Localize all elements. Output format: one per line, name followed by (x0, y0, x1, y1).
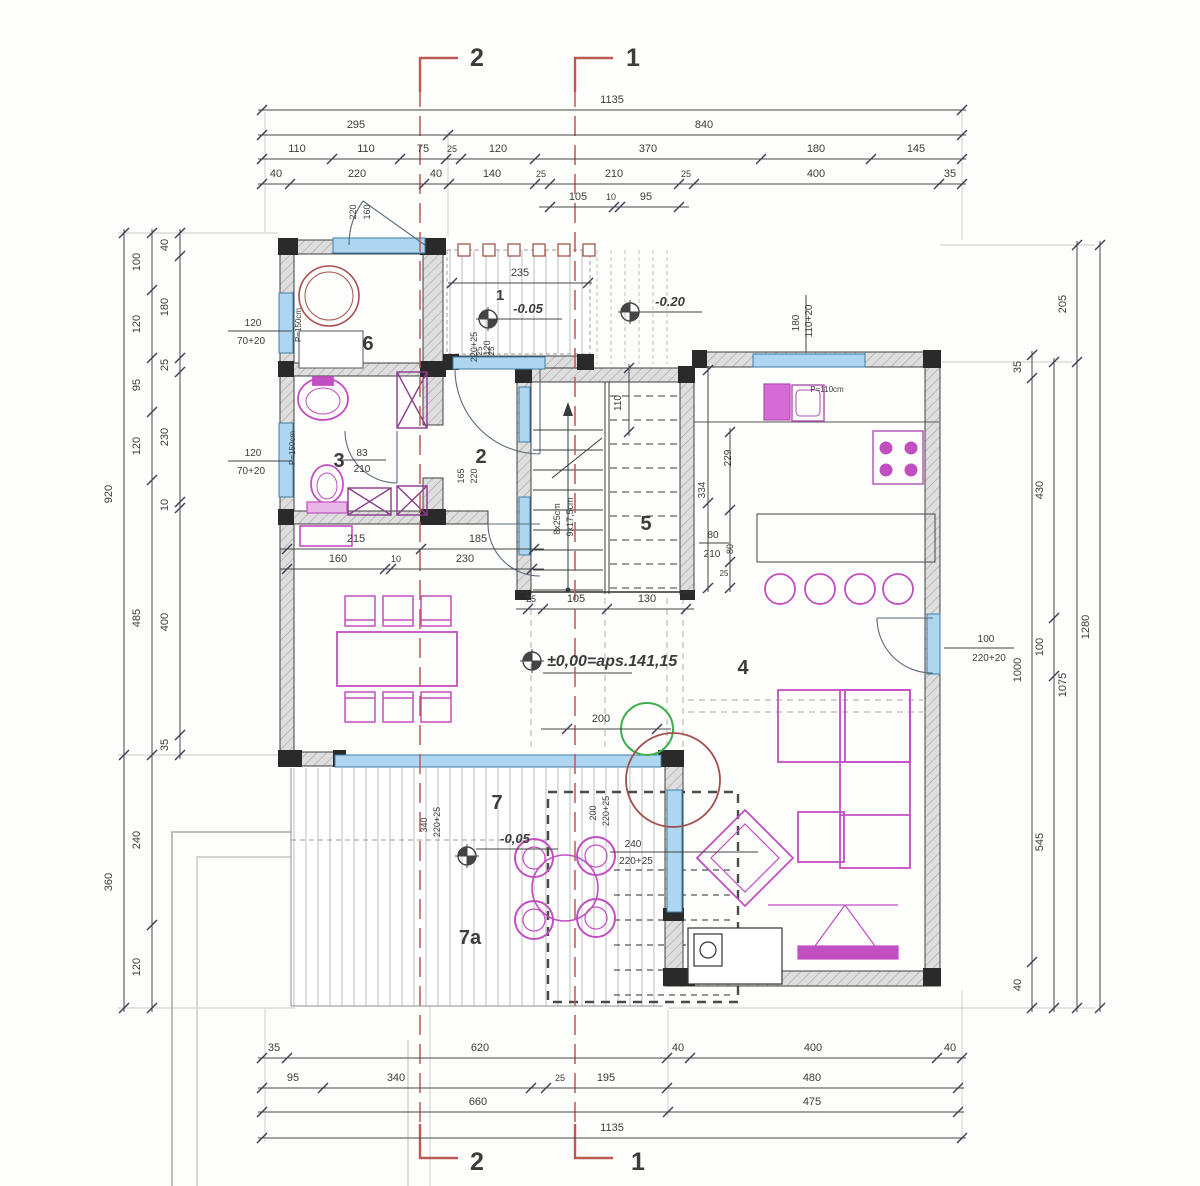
dim-value: 1135 (600, 1122, 624, 1134)
sofa-cushion (798, 812, 844, 862)
dim-value: 75 (417, 143, 429, 155)
bar-stools (765, 574, 913, 604)
dim-value: 295 (347, 119, 365, 131)
door-spec-east-b: 220+20 (972, 653, 1006, 664)
stair-break-line (552, 438, 602, 478)
dim-value: 10 (159, 499, 171, 511)
dim-value: 370 (639, 143, 657, 155)
kitchen-sink-left (764, 384, 790, 420)
stair-treads-upper (610, 396, 678, 588)
floor-plan-drawing: 1135295840110110752512037018014540220401… (0, 0, 1200, 1186)
door-spec-bath-a: 83 (356, 448, 368, 459)
door-spec-entry-b: 160 (362, 204, 372, 219)
door-spec-terrace-s-a: 200 (588, 805, 598, 820)
dim-210: 210 (704, 549, 721, 560)
floor-plan-sheet: 1135295840110110752512037018014540220401… (0, 0, 1200, 1186)
dim-value: 120 (489, 143, 507, 155)
dim-value: 95 (131, 379, 143, 391)
dim-value: 110 (357, 143, 375, 155)
room-label-5: 5 (640, 513, 651, 535)
dim-value: 40 (944, 1042, 956, 1054)
door-spec-east-a: 100 (978, 634, 995, 645)
dim-value: 230 (456, 553, 474, 565)
stair-direction-arrow (563, 402, 573, 416)
dim-25-porch-b: 25 (487, 346, 496, 355)
dim-value: 185 (469, 533, 487, 545)
section-label-2-bottom: 2 (470, 1148, 484, 1176)
furniture-kitchen (694, 384, 939, 604)
dim-value: 1135 (600, 94, 624, 106)
dim-229: 229 (723, 449, 734, 466)
section-label-2-top: 2 (470, 44, 484, 72)
dim-value: 660 (469, 1096, 487, 1108)
door-spec-terrace-s-b: 220+25 (601, 796, 611, 826)
toilet (307, 465, 347, 513)
dim-value: 35 (159, 739, 171, 751)
furniture-bathroom (298, 377, 348, 513)
window-spec-left-top: 120 (245, 318, 262, 329)
room-label-4: 4 (737, 657, 749, 679)
dim-chain-bottom-row-total: 1135 (257, 1122, 967, 1143)
furniture-living (697, 690, 910, 959)
section-label-1-top: 1 (626, 44, 640, 72)
dim-value: 220 (348, 168, 366, 180)
dim-value: 240 (131, 831, 143, 849)
dim-value: 210 (605, 168, 623, 180)
dim-value: 95 (287, 1072, 299, 1084)
section-label-1-bottom: 1 (631, 1148, 645, 1176)
dim-value: 620 (471, 1042, 489, 1054)
dim-chain-left-col-mid: 10012095120485240120 (131, 228, 157, 1013)
dining-table (337, 632, 457, 686)
dim-value: 545 (1034, 833, 1046, 851)
dim-value: 120 (131, 437, 143, 455)
dim-value: 160 (329, 553, 347, 565)
dim-chain-right-col-a: 35100040 (1012, 350, 1037, 1013)
dim-chain-left-col-inner: 40180252301040035 (159, 228, 185, 760)
dim-value: 1000 (1012, 658, 1024, 682)
parapet-left-bot: P=150cm (288, 431, 297, 465)
dim-chain-bottom-row-3: 660475 (257, 1096, 964, 1117)
dim-chain-top-row-3: 1101107525120370180145 (257, 143, 967, 164)
dim-80a: 80 (707, 530, 719, 541)
dim-value: 180 (159, 298, 171, 316)
door-terrace (667, 790, 682, 912)
level-terrace: -0,05 (500, 831, 530, 846)
dim-value: 145 (907, 143, 925, 155)
stair-walk-start (566, 588, 571, 593)
dim-value: 35 (944, 168, 956, 180)
glass-stair-b (519, 497, 530, 555)
dim-value: 360 (103, 873, 115, 891)
furniture-room6 (299, 266, 363, 368)
door-east (927, 614, 940, 674)
dim-value: 1075 (1057, 673, 1069, 697)
dim-value: 400 (807, 168, 825, 180)
dim-chain-hall-lower: 16010230 (280, 553, 544, 574)
entry-door-glazing (333, 238, 425, 253)
furniture-dining (337, 596, 457, 722)
dim-value: 100 (131, 253, 143, 271)
dim-value: 35 (1012, 361, 1024, 373)
dim-value: 40 (270, 168, 282, 180)
sink (298, 377, 348, 420)
room-label-7: 7 (491, 792, 502, 814)
kitchen-island (757, 514, 935, 562)
dim-value: 920 (103, 485, 115, 503)
sofa-seat (778, 690, 910, 762)
opening-spec-hall-a: 165 (456, 468, 466, 483)
dim-25a: 25 (720, 569, 729, 578)
dim-value: 130 (638, 593, 656, 605)
dim-chain-top-row-5: 1051095 (539, 191, 689, 212)
dim-25-porch-a: 25 (475, 346, 484, 355)
dim-value: 110 (288, 143, 306, 155)
dim-value: 40 (430, 168, 442, 180)
dim-value: 35 (268, 1042, 280, 1054)
dim-value: 40 (159, 239, 171, 251)
dim-value: 400 (159, 613, 171, 631)
dim-stair-110: 110 (613, 395, 624, 411)
appliance-boxes (348, 372, 427, 515)
dim-value: 205 (1057, 295, 1069, 313)
dim-value: 1280 (1080, 615, 1092, 639)
dim-chain-living-200: 200 (541, 713, 671, 734)
dim-value: 40 (672, 1042, 684, 1054)
dim-chain-bottom-row-1: 356204040040 (257, 1042, 967, 1063)
dim-value: 10 (391, 554, 401, 564)
dim-chain-left-col-outer: 920360 (103, 228, 129, 1013)
dim-value: 25 (681, 169, 691, 179)
level-ground: -0.20 (655, 294, 685, 309)
dim-value: 230 (159, 428, 171, 446)
window-spec-left-top2: 70+20 (237, 336, 266, 347)
room-label-2: 2 (475, 446, 486, 468)
armchair-diamond (697, 810, 793, 906)
porch-label-1: 1 (496, 287, 504, 304)
window-spec-left-bot2: 70+20 (237, 466, 266, 477)
window-kitchen (753, 354, 865, 367)
dim-chain-hall-upper: 215185 (280, 533, 544, 554)
dim-chain-right-col-c: 2051075 (1057, 240, 1082, 1013)
dim-value: 10 (606, 192, 616, 202)
level-porch: -0.05 (513, 301, 543, 316)
room-label-6: 6 (362, 333, 373, 355)
dim-value: 180 (807, 143, 825, 155)
window-spec-kitchen-a: 180 (791, 314, 802, 331)
dim-value: 120 (131, 315, 143, 333)
dim-value: 400 (804, 1042, 822, 1054)
dim-value: 840 (695, 119, 713, 131)
dim-value: 475 (803, 1096, 821, 1108)
dim-value: 95 (640, 191, 652, 203)
door-spec-bath-b: 210 (354, 464, 371, 475)
dim-value: 480 (803, 1072, 821, 1084)
window-spec-left-bot: 120 (245, 448, 262, 459)
stairs (533, 382, 678, 594)
dim-value: 25 (447, 144, 457, 154)
stove (873, 431, 923, 484)
dim-value: 235 (511, 267, 529, 279)
dim-value: 120 (131, 958, 143, 976)
dim-value: 25 (159, 359, 171, 371)
dim-chain-top-row-2: 295840 (257, 119, 967, 140)
window-room6 (279, 293, 293, 353)
dim-value: 25 (526, 594, 536, 604)
opening-spec-hall-b: 220 (469, 468, 479, 483)
dim-80b: 80 (725, 544, 735, 554)
dim-value: 140 (483, 168, 501, 180)
glass-stair-a (519, 387, 530, 442)
window-spec-south-a: 340 (419, 817, 429, 832)
dim-chain-bottom-row-2: 9534025195480 (257, 1072, 964, 1093)
dim-value: 25 (536, 169, 546, 179)
room-label-7a: 7a (459, 927, 482, 949)
parapet-kitchen: P=110cm (810, 385, 844, 394)
window-south (335, 755, 661, 767)
window-spec-kitchen-b: 110+20 (804, 304, 815, 337)
dim-334: 334 (697, 481, 708, 498)
dim-chain-top-row-total: 1135 (257, 94, 967, 115)
porch-door (453, 357, 545, 369)
stair-note-b: 9x17,5cm (565, 497, 575, 536)
dining-chairs (345, 596, 451, 722)
dim-value: 105 (569, 191, 587, 203)
hall-cabinet (300, 526, 352, 546)
dim-chain-top-row-4: 4022040140252102540035 (257, 168, 967, 189)
stair-note-a: 8x25cm (552, 503, 562, 535)
door-spec-terrace-e-b: 220+25 (619, 856, 653, 867)
sofa-chaise (840, 690, 910, 868)
dim-value: 100 (1034, 638, 1046, 656)
parapet-left-top: P=150cm (294, 308, 303, 342)
room-label-3: 3 (333, 450, 344, 472)
lowboard-fireplace (688, 928, 782, 984)
dim-value: 25 (555, 1073, 565, 1083)
level-main: ±0,00=aps.141,15 (547, 653, 678, 670)
dim-value: 215 (347, 533, 365, 545)
dim-value: 200 (592, 713, 610, 725)
dim-value: 105 (567, 593, 585, 605)
window-spec-south-b: 220+25 (432, 807, 442, 837)
dim-chain-right-col-d: 1280 (1080, 240, 1105, 1013)
dim-value: 340 (387, 1072, 405, 1084)
door-spec-terrace-e-a: 240 (625, 839, 642, 850)
door-spec-entry-a: 220 (348, 204, 358, 219)
dim-value: 485 (131, 609, 143, 627)
dim-chain-right-col-b: 430100545 (1034, 357, 1059, 1013)
tv-unit (768, 905, 898, 959)
dim-value: 430 (1034, 481, 1046, 499)
dim-value: 195 (597, 1072, 615, 1084)
dim-value: 40 (1012, 979, 1024, 991)
